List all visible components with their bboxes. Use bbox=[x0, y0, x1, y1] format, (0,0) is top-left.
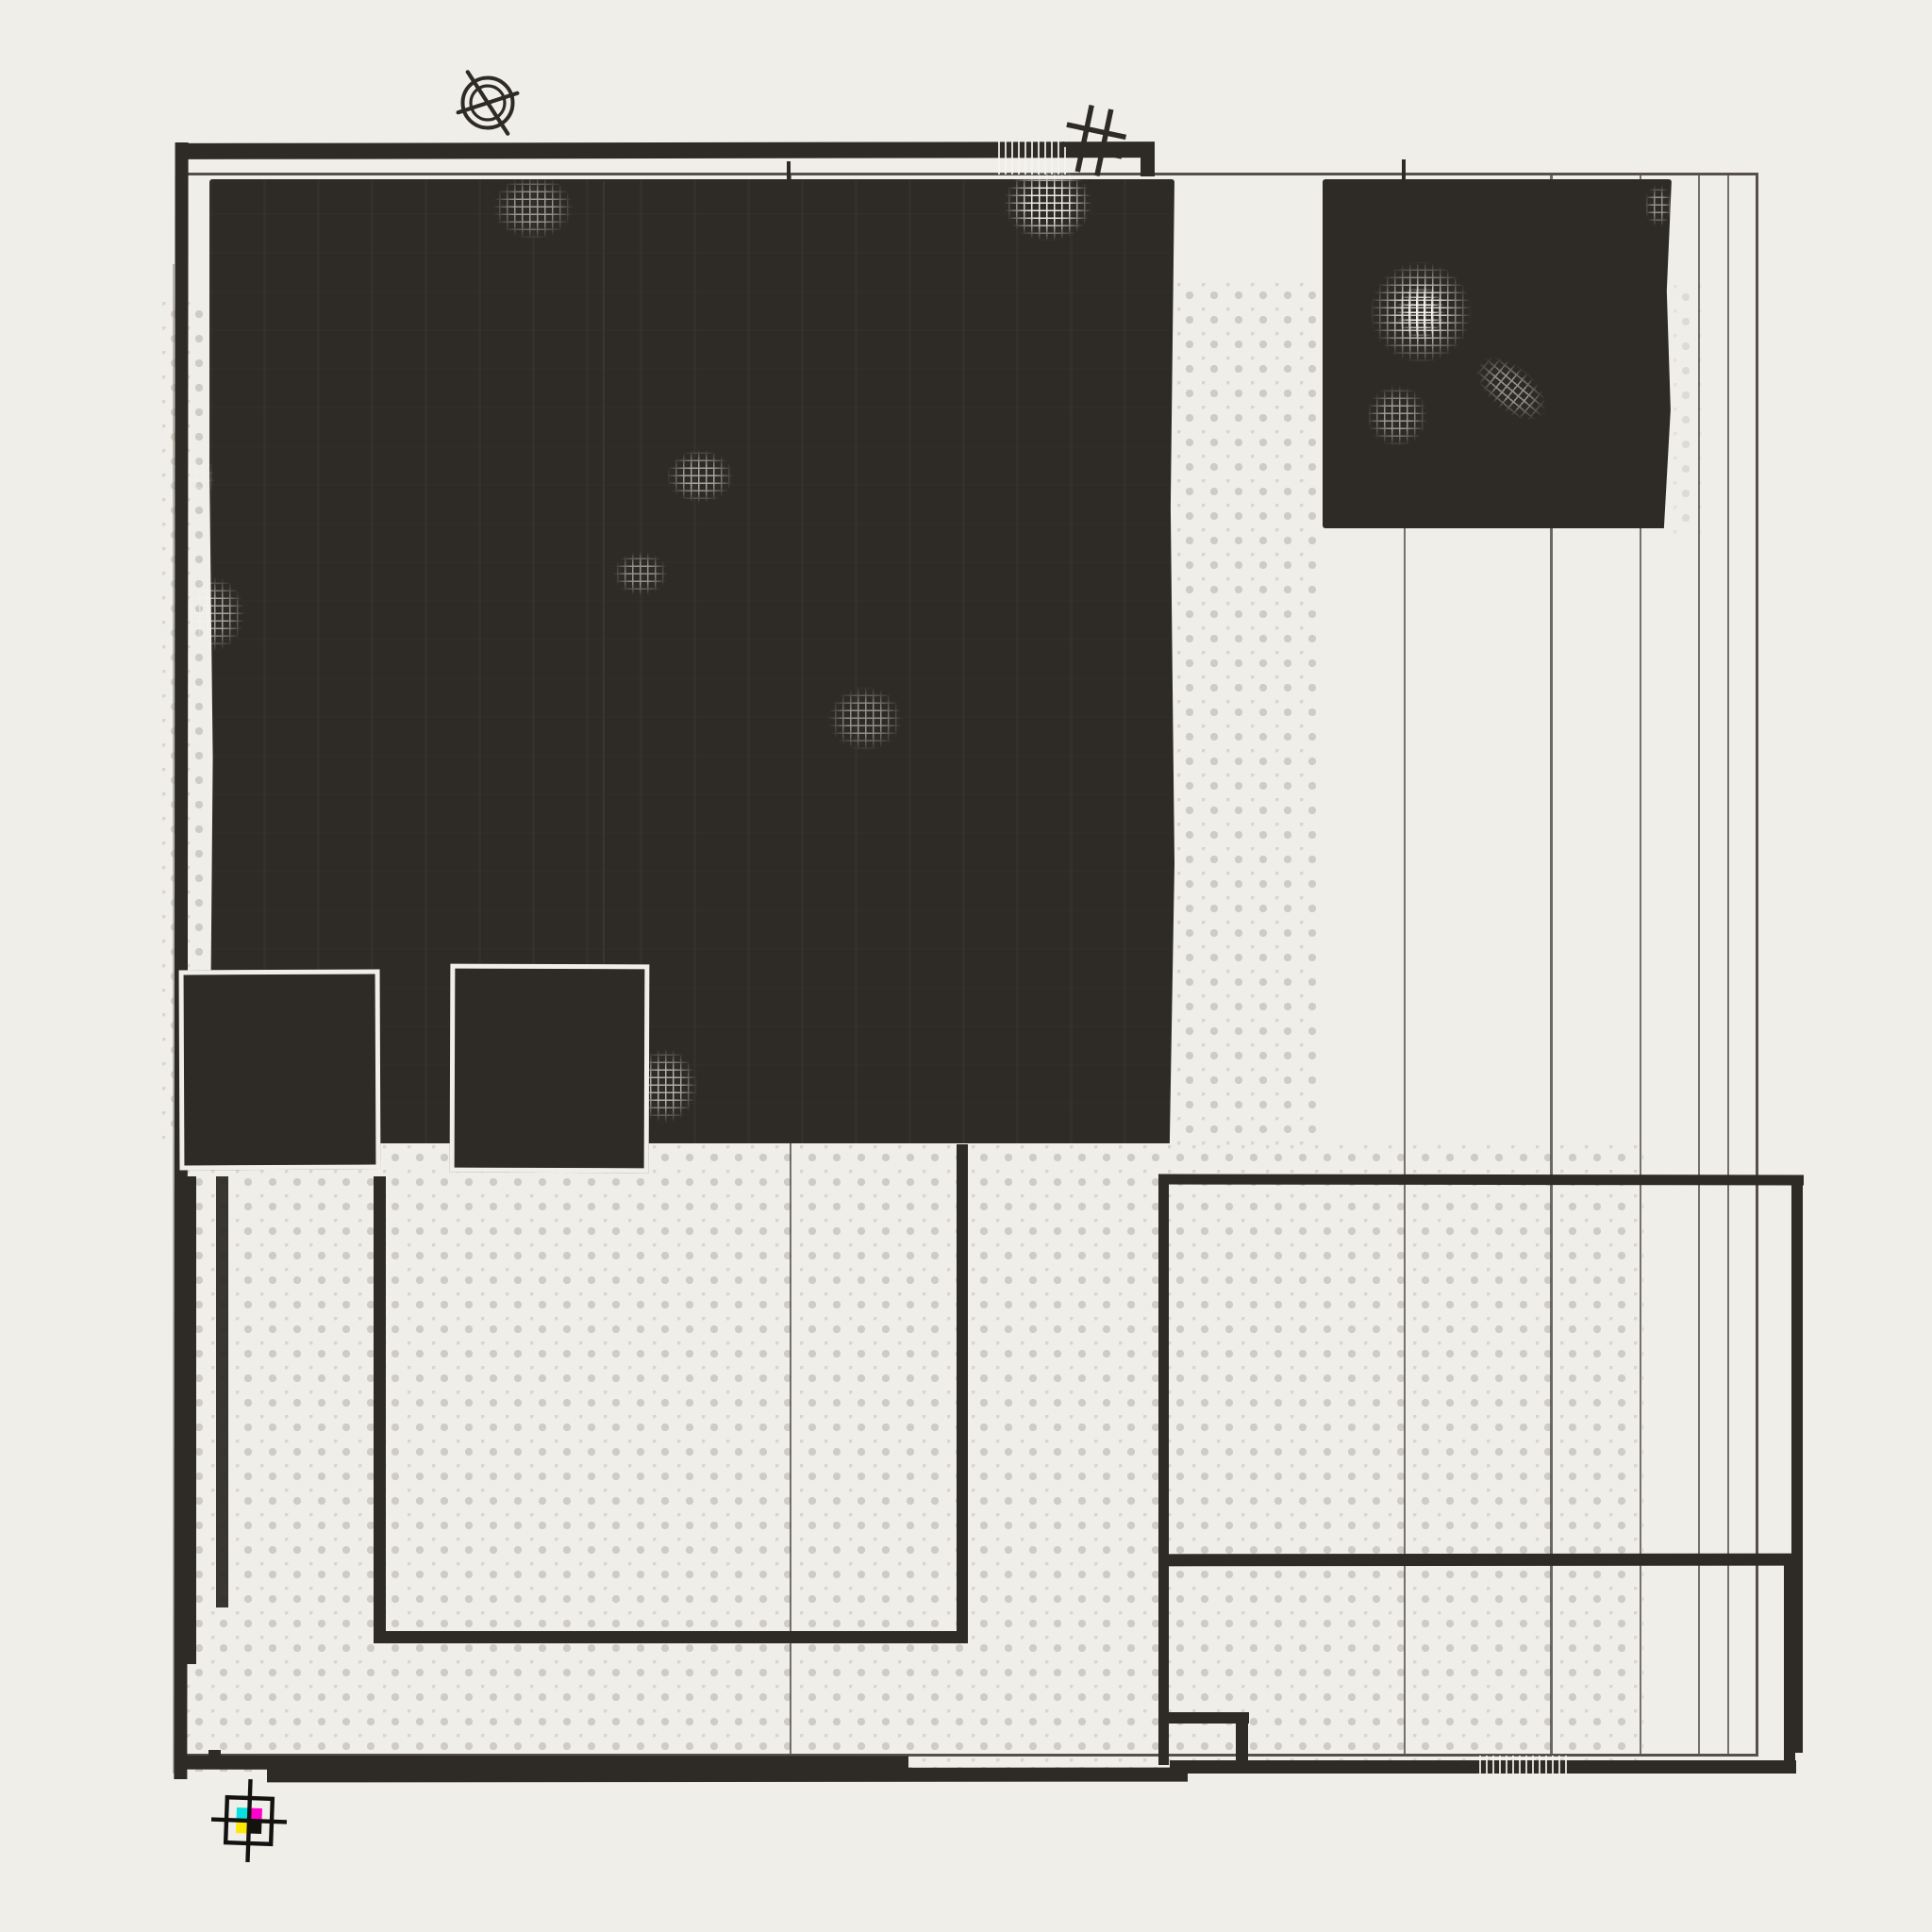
rule-right bbox=[1756, 173, 1758, 1757]
hatch-cloud-f bbox=[812, 674, 918, 764]
hatch-cloud-tr-core bbox=[1386, 274, 1456, 351]
artwork-canvas bbox=[0, 0, 1932, 1932]
outlined-square-right bbox=[450, 964, 650, 1174]
frame-bottom-bar-b bbox=[267, 1768, 1188, 1783]
rule-v-1801 bbox=[1698, 174, 1700, 1755]
halftone-lower-field bbox=[187, 1145, 1643, 1772]
registration-cmyk-target-icon bbox=[174, 1745, 325, 1896]
hatch-cloud-tr-corner bbox=[1639, 175, 1678, 236]
registration-hash-icon bbox=[1019, 65, 1170, 216]
bottomright-rect-top bbox=[1158, 1174, 1804, 1186]
halftone-gap-column bbox=[1177, 283, 1321, 1145]
hatch-cloud-d bbox=[602, 542, 679, 605]
bottomright-inner-bar bbox=[1158, 1554, 1796, 1567]
frame-left-bar-2 bbox=[185, 1176, 196, 1664]
registration-circle-crosshair-icon bbox=[412, 27, 563, 178]
hatch-cloud-tr-lower bbox=[1354, 373, 1441, 459]
bottomright-inner-right bbox=[1784, 1554, 1795, 1772]
hatch-cloud-c bbox=[653, 439, 747, 514]
rule-v-1832 bbox=[1727, 174, 1729, 1755]
outlined-square-left bbox=[179, 970, 381, 1171]
bottomleft-rect-right bbox=[957, 1144, 968, 1643]
comb-bottom bbox=[1479, 1756, 1568, 1774]
hatch-cloud-h bbox=[165, 443, 224, 511]
frame-left-bar-3 bbox=[216, 1176, 228, 1607]
bottomleft-rect-left bbox=[374, 1176, 386, 1643]
bottomright-rect-left bbox=[1158, 1174, 1169, 1765]
bottomleft-rect-bottom bbox=[374, 1631, 966, 1643]
